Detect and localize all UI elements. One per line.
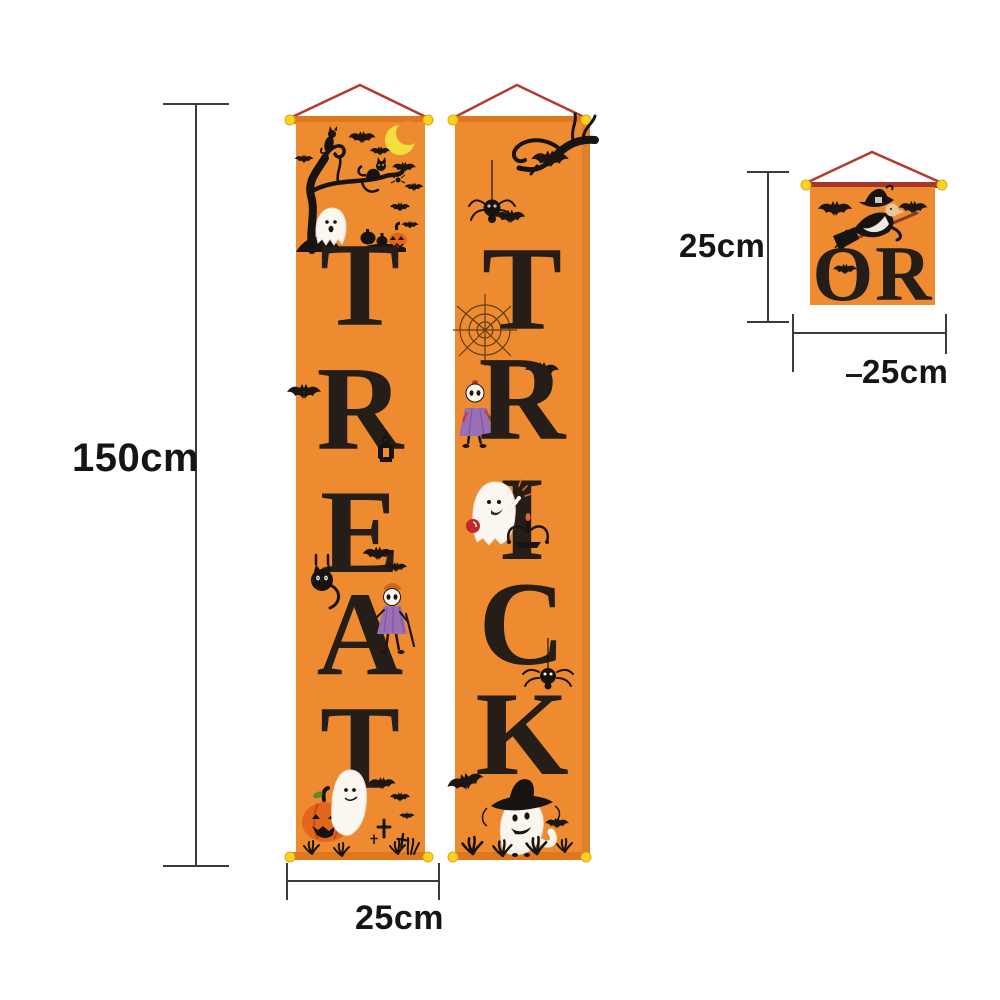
dimension-tick bbox=[846, 374, 862, 377]
or-banner: OR bbox=[795, 140, 950, 315]
banner-letter: R bbox=[479, 332, 567, 465]
fabric-shadow bbox=[582, 122, 590, 856]
height-dimension-cap-top bbox=[163, 103, 229, 105]
banner-word: OR bbox=[813, 230, 934, 315]
small-height-dimension-line bbox=[767, 172, 769, 322]
small-width-dimension-line bbox=[793, 332, 946, 334]
width-dimension-cap-right bbox=[438, 863, 440, 900]
hanging-string bbox=[290, 85, 428, 118]
height-dimension-cap-bottom bbox=[163, 865, 229, 867]
width-dimension-cap-left bbox=[286, 863, 288, 900]
height-dimension-label: 150cm bbox=[72, 436, 190, 481]
small-width-dimension-cap-right bbox=[945, 314, 947, 354]
hanging-string bbox=[806, 152, 942, 183]
small-width-dimension-label: 25cm bbox=[862, 353, 948, 391]
small-width-dimension-cap-left bbox=[792, 314, 794, 372]
trick-banner: T R I C K bbox=[445, 78, 600, 872]
small-height-dimension-label: 25cm bbox=[679, 227, 765, 265]
height-dimension-line bbox=[195, 104, 197, 866]
halloween-banner-size-chart: 150cm bbox=[0, 0, 1000, 1000]
small-height-dimension-cap-bottom bbox=[747, 321, 789, 323]
hanging-string bbox=[453, 85, 586, 118]
width-dimension-label: 25cm bbox=[355, 899, 444, 938]
banner-letter: T bbox=[320, 218, 400, 351]
treat-banner: T R E A T bbox=[280, 78, 445, 872]
width-dimension-line bbox=[287, 880, 439, 882]
small-height-dimension-cap-top bbox=[747, 171, 789, 173]
